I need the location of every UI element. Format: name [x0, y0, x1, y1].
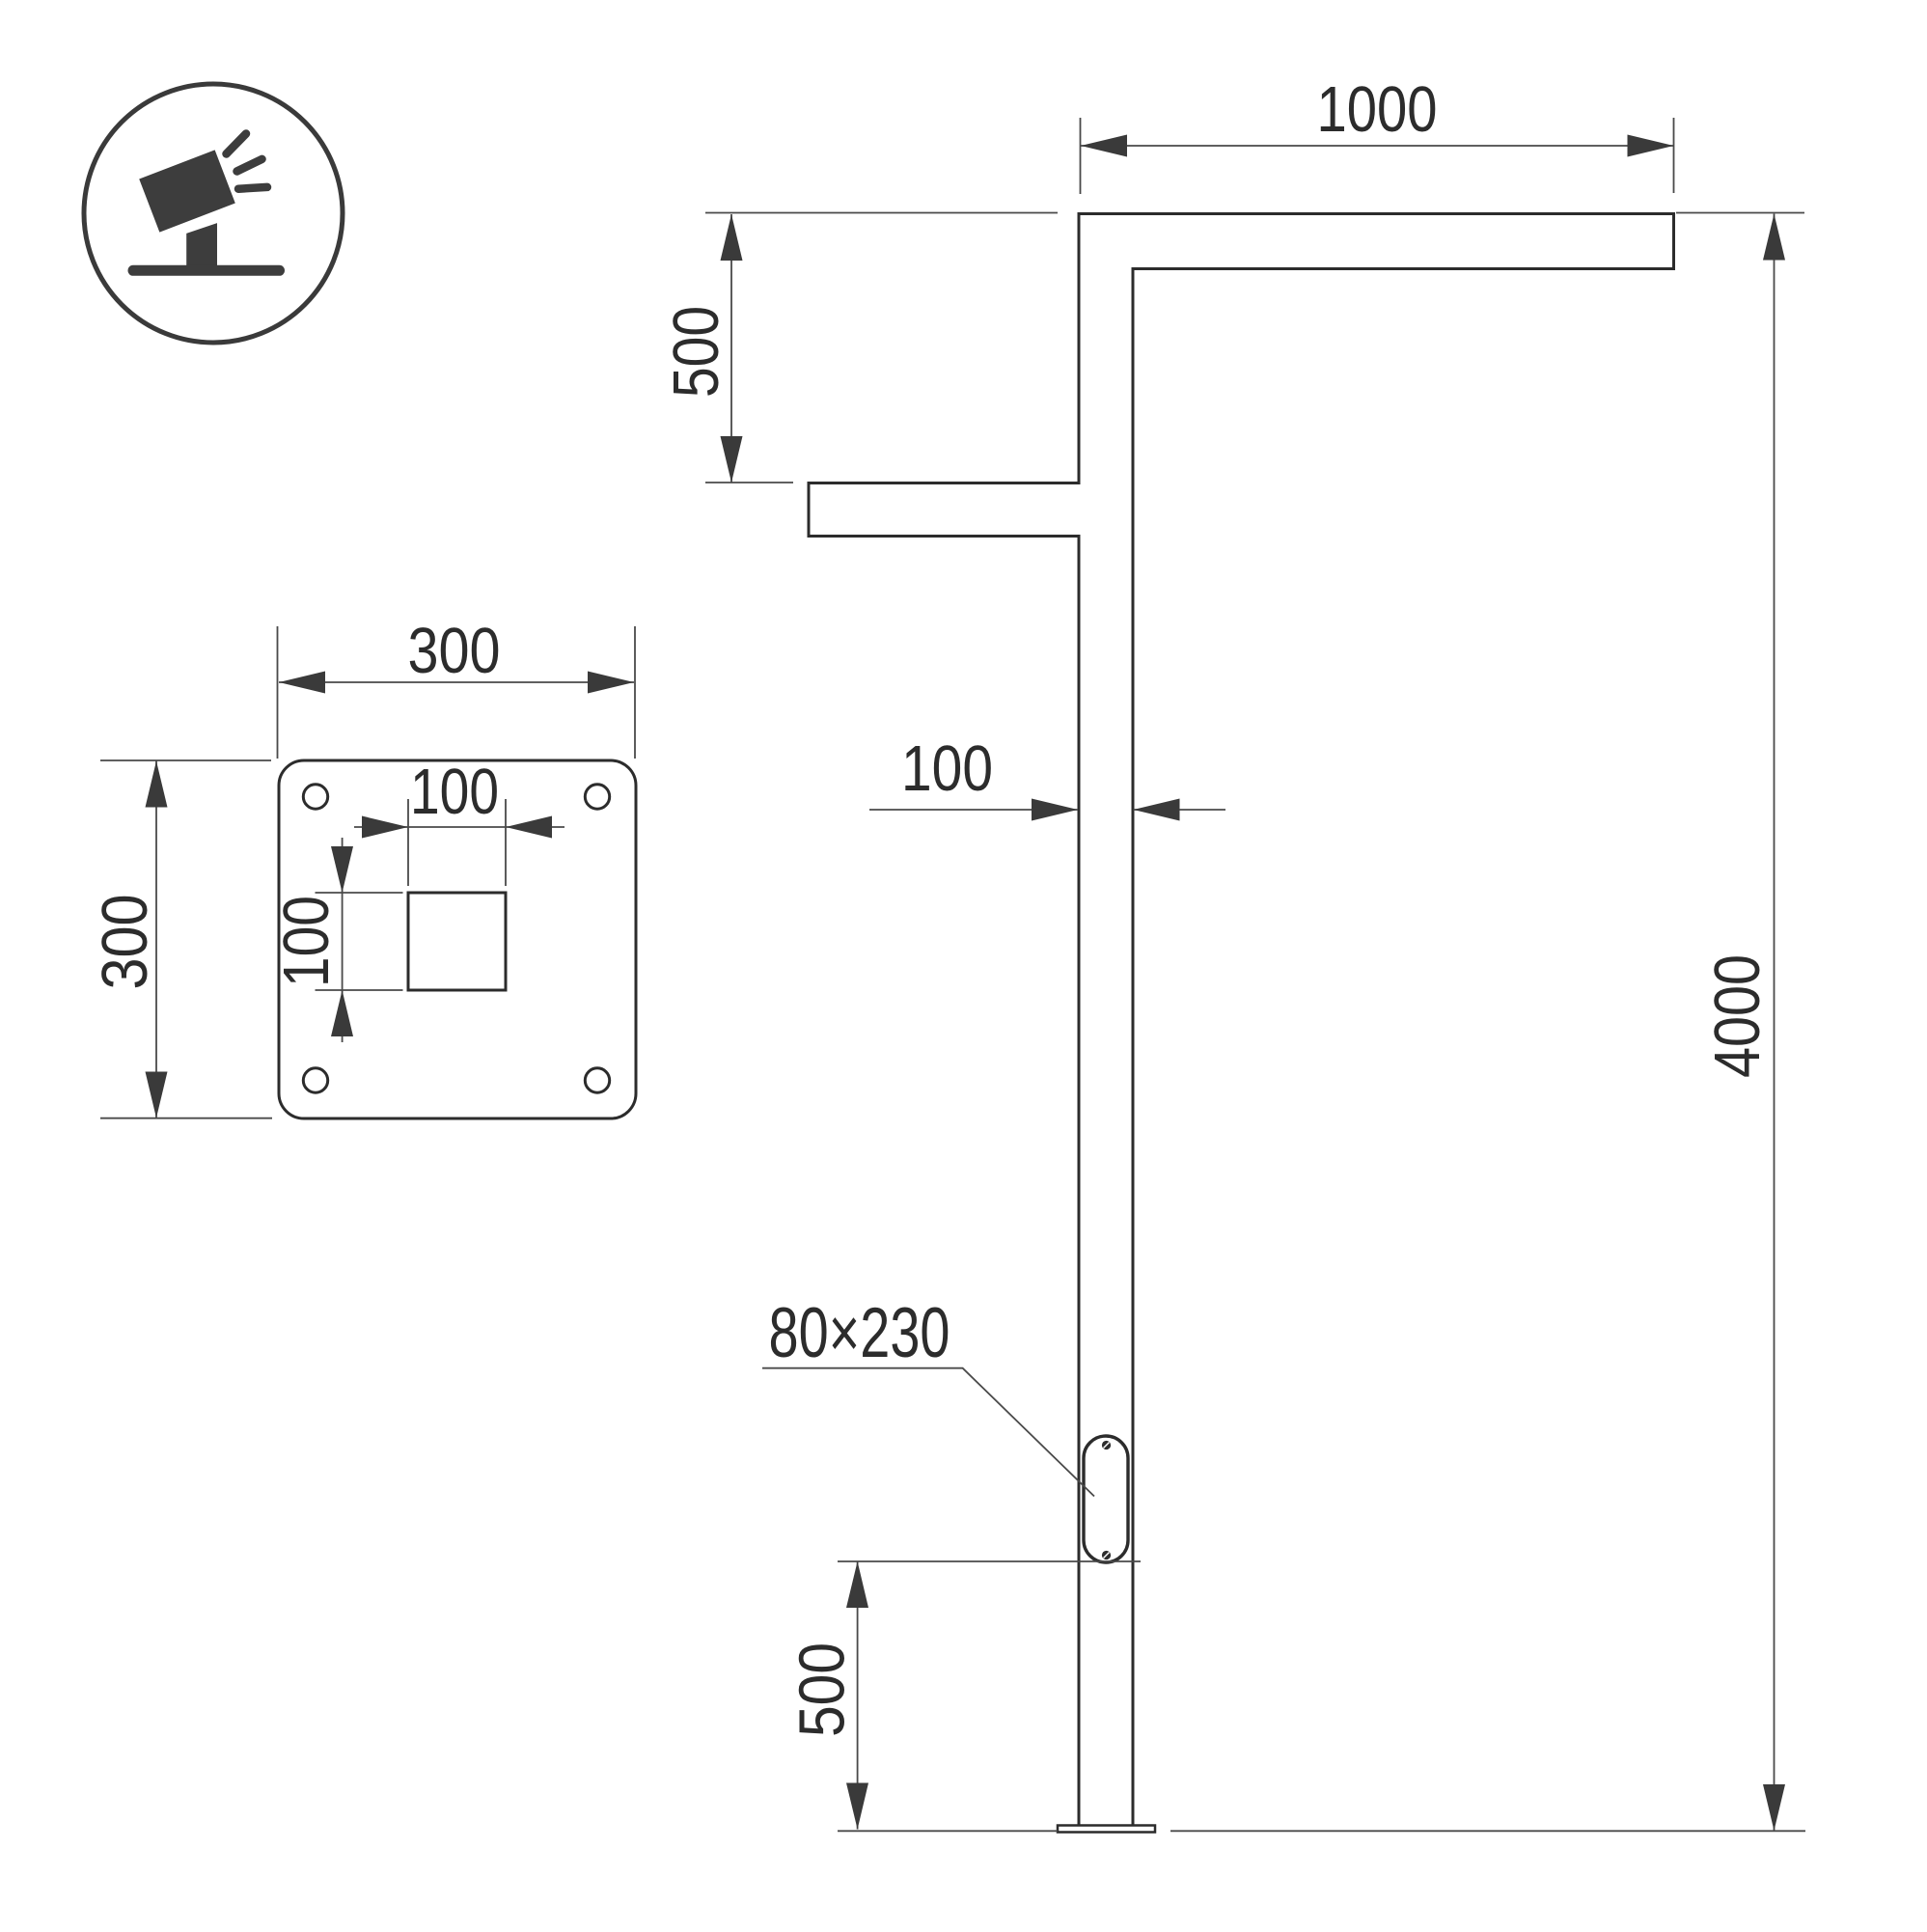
svg-text:100: 100: [901, 732, 993, 805]
svg-text:80×230: 80×230: [769, 1294, 950, 1372]
svg-text:100: 100: [270, 896, 343, 987]
svg-text:300: 300: [408, 615, 501, 687]
svg-text:500: 500: [786, 1642, 859, 1737]
svg-text:100: 100: [410, 756, 499, 828]
svg-text:1000: 1000: [1317, 73, 1438, 146]
svg-text:300: 300: [89, 895, 161, 990]
svg-text:4000: 4000: [1701, 954, 1774, 1078]
svg-text:500: 500: [660, 306, 732, 398]
